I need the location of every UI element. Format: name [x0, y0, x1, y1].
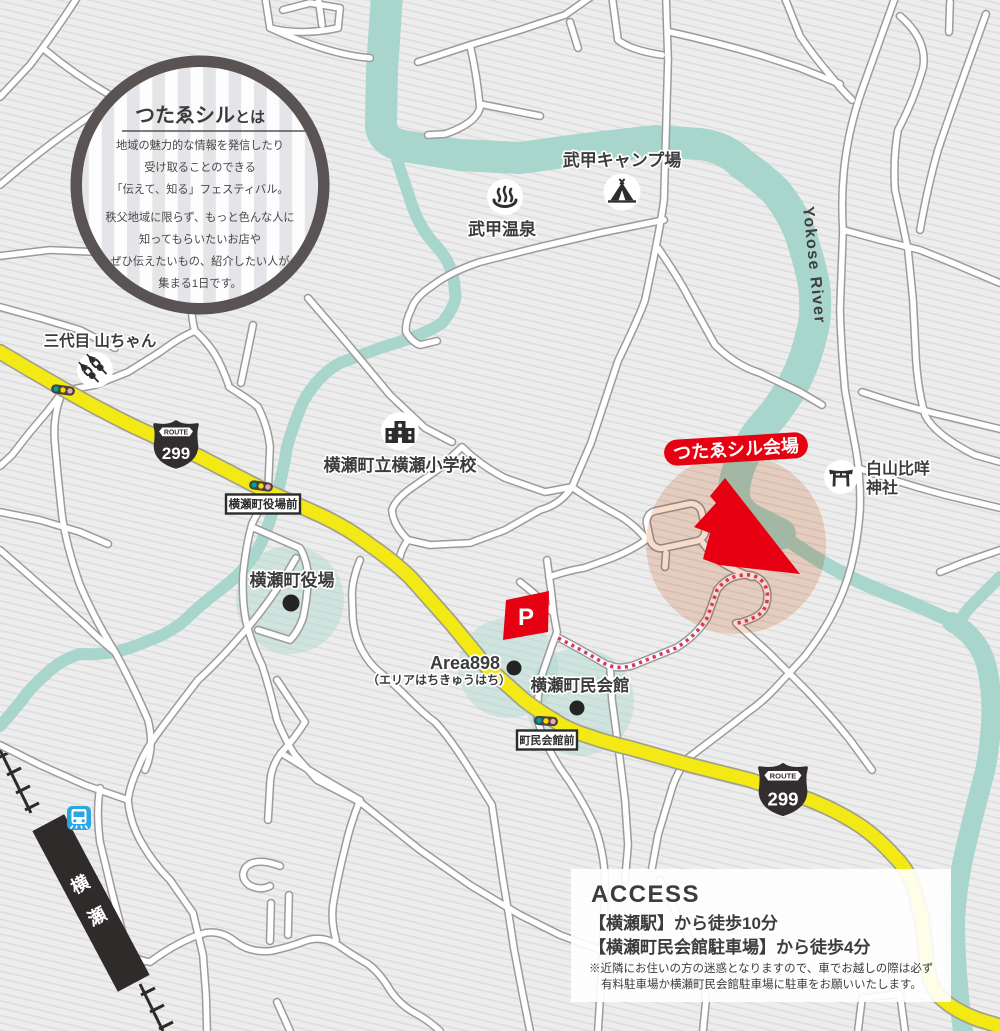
svg-text:白山比咩: 白山比咩 — [866, 459, 930, 478]
svg-text:三代目 山ちゃん: 三代目 山ちゃん — [44, 331, 157, 350]
svg-text:町民会館前: 町民会館前 — [520, 733, 575, 747]
svg-text:有料駐車場か横瀬町民会館駐車場に駐車をお願いいたします。: 有料駐車場か横瀬町民会館駐車場に駐車をお願いいたします。 — [601, 977, 922, 991]
svg-text:武甲キャンプ場: 武甲キャンプ場 — [563, 150, 682, 170]
svg-text:（エリアはちきゅうはち）: （エリアはちきゅうはち） — [367, 672, 511, 687]
svg-text:ACCESS: ACCESS — [591, 881, 700, 908]
svg-text:【横瀬駅】から徒歩10分: 【横瀬駅】から徒歩10分 — [589, 913, 778, 933]
svg-text:Area898: Area898 — [430, 653, 500, 673]
svg-text:「伝えて、知る」フェスティバル。: 「伝えて、知る」フェスティバル。 — [111, 182, 288, 196]
svg-text:横瀬町役場前: 横瀬町役場前 — [229, 497, 298, 511]
svg-text:集まる1日です。: 集まる1日です。 — [158, 276, 241, 290]
svg-text:※近隣にお住いの方の迷惑となりますので、車でお越しの際は必ず: ※近隣にお住いの方の迷惑となりますので、車でお越しの際は必ず — [589, 961, 933, 975]
svg-text:横瀬町役場: 横瀬町役場 — [250, 570, 335, 590]
svg-text:秩父地域に限らず、もっと色んな人に: 秩父地域に限らず、もっと色んな人に — [105, 210, 294, 224]
svg-text:ぜひ伝えたいもの、紹介したい人が: ぜひ伝えたいもの、紹介したい人が — [110, 254, 289, 268]
svg-text:横瀬町民会館: 横瀬町民会館 — [531, 675, 630, 695]
svg-text:地域の魅力的な情報を発信したり: 地域の魅力的な情報を発信したり — [116, 138, 284, 152]
svg-text:【横瀬町民会館駐車場】から徒歩4分: 【横瀬町民会館駐車場】から徒歩4分 — [589, 937, 870, 957]
svg-text:知ってもらいたいお店や: 知ってもらいたいお店や — [139, 232, 261, 246]
svg-text:横瀬町立横瀬小学校: 横瀬町立横瀬小学校 — [324, 455, 478, 475]
svg-text:神社: 神社 — [866, 478, 898, 497]
svg-text:武甲温泉: 武甲温泉 — [468, 219, 537, 239]
svg-text:P: P — [518, 604, 534, 631]
svg-text:受け取ることのできる: 受け取ることのできる — [144, 161, 256, 174]
